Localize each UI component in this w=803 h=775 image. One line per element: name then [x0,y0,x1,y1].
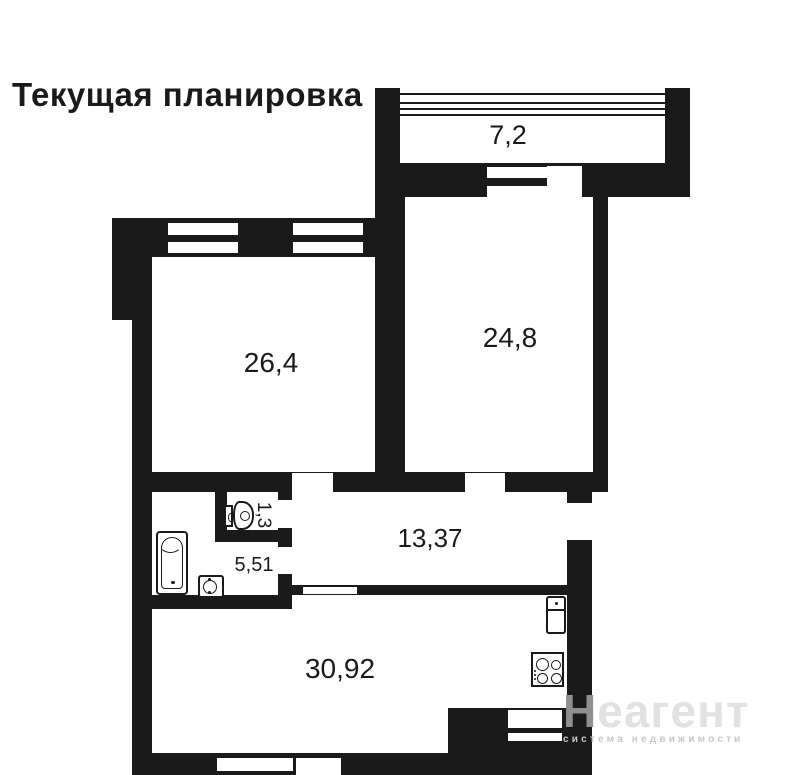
wall [132,753,592,775]
wall [132,320,152,775]
door-opening-bedroom [465,473,505,492]
passage-opening [303,587,357,594]
room-label-wc: 1,3 [252,495,274,535]
floor-plan: Текущая планировка [0,0,803,775]
wall [112,218,152,320]
watermark-tagline: система недвижимости [563,735,803,745]
toilet-icon [224,505,233,527]
window [168,223,238,235]
window [508,710,562,728]
wall [132,472,608,492]
window [293,242,363,253]
room-label-bathroom: 5,51 [218,554,290,577]
window [508,733,562,741]
balcony-glazing-line [398,93,667,95]
watermark-rest: еагент [597,685,749,737]
door-opening-wc [278,500,292,528]
watermark-first-letter: Н [563,685,597,737]
entrance-door-opening [567,503,592,540]
door-opening-living [292,473,333,492]
window [293,223,363,235]
window [487,186,547,197]
balcony-glazing-line [398,102,667,104]
watermark-logo: Неагент система недвижимости [563,688,803,745]
fridge-icon [546,596,566,634]
toilet-icon [233,501,254,530]
room-label-hallway: 13,37 [370,523,490,554]
window [296,758,341,775]
page-title: Текущая планировка [12,76,363,114]
balcony-door-opening [547,166,582,197]
balcony-glazing-line [398,114,667,116]
window [168,242,238,253]
bathtub-icon [156,531,188,595]
stove-icon [531,652,564,687]
room-label-balcony: 7,2 [468,120,548,151]
window [487,167,547,178]
window [217,758,293,771]
wall [593,197,608,473]
balcony-glazing-line [398,108,667,110]
room-label-bedroom: 24,8 [460,322,560,354]
sink-icon [198,575,224,598]
room-label-kitchen-living: 30,92 [280,653,400,685]
room-label-living: 26,4 [221,347,321,379]
